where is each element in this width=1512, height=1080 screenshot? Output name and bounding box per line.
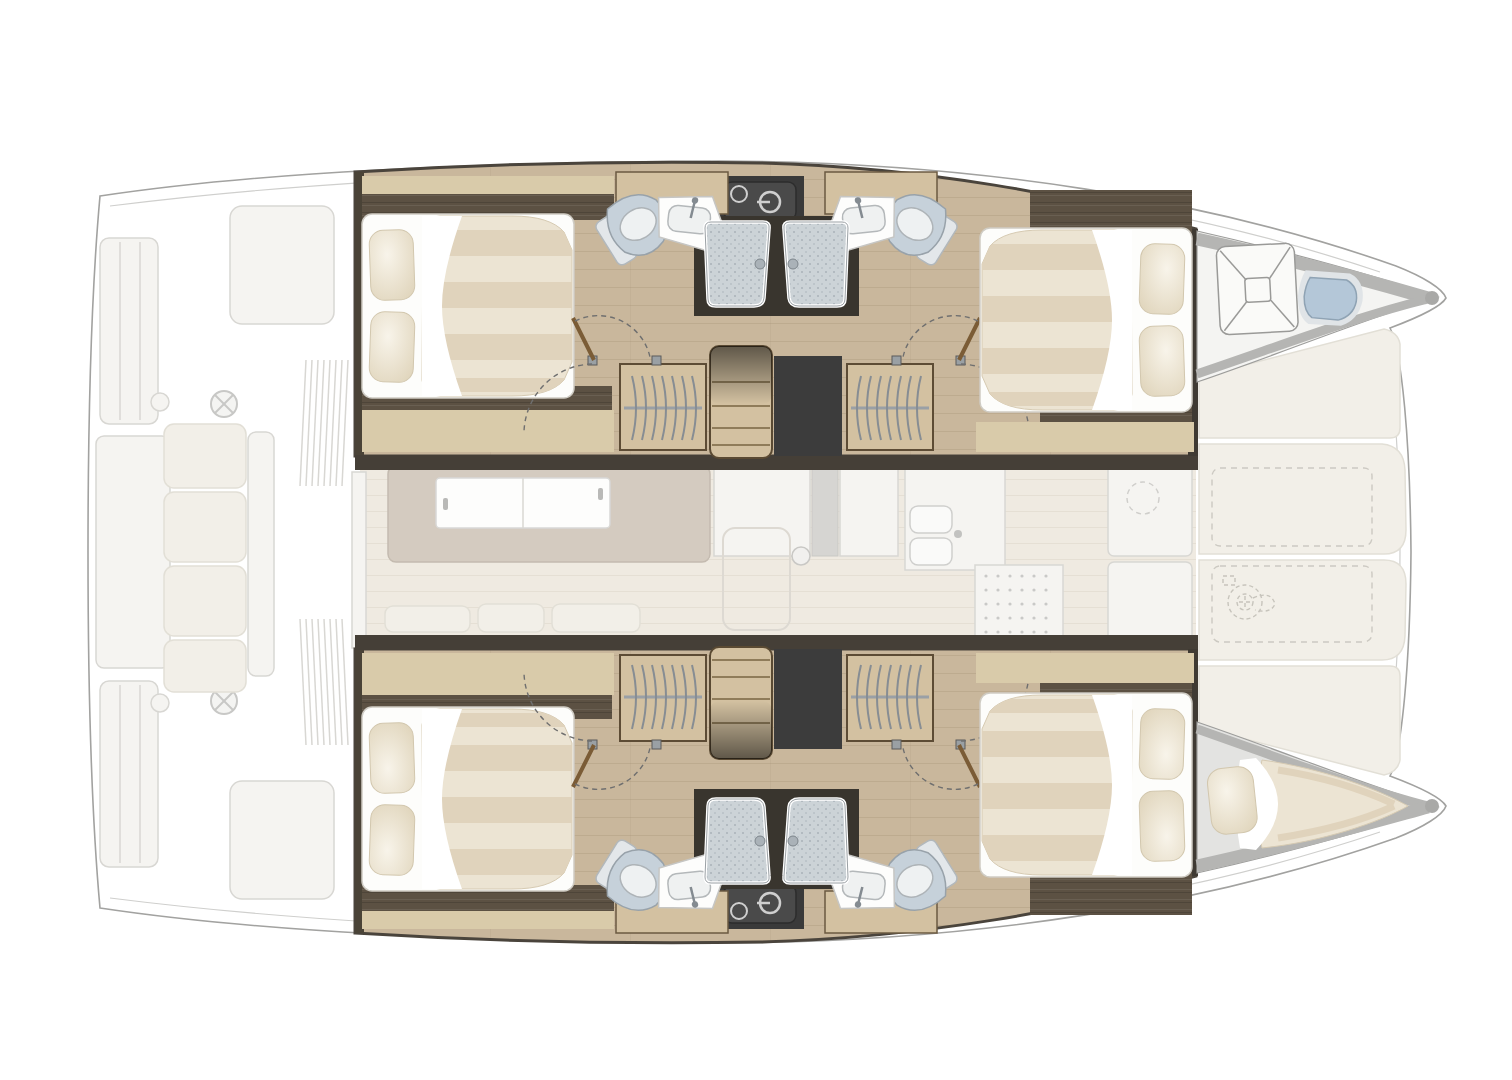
bench-cushion [164, 640, 246, 692]
door-handle [443, 498, 448, 510]
swim-platform [96, 436, 170, 668]
sofa-cushion [385, 606, 470, 632]
door-post [812, 462, 838, 556]
starboard-hull-interior [355, 635, 1198, 943]
stove [975, 565, 1063, 647]
catamaran-floor-plan [0, 0, 1512, 1080]
sink-bowl [910, 506, 952, 533]
refrigerator [1108, 460, 1192, 556]
bow-tip [1425, 799, 1439, 813]
sunpad-cushion [1199, 444, 1406, 554]
faucet [954, 530, 962, 538]
sofa-cushion [478, 604, 544, 632]
floor-plan-canvas [0, 0, 1512, 1080]
skipper-pillow [1206, 765, 1259, 835]
sofa-cushion [552, 604, 640, 632]
bench-cushion [164, 492, 246, 562]
port-hull-interior [355, 162, 1198, 470]
white-panel [840, 460, 898, 556]
sink-bowl [910, 538, 952, 565]
bench-cushion [164, 566, 246, 636]
forward-door-unit [714, 462, 810, 556]
bow-tip [1425, 291, 1439, 305]
aft-cockpit [96, 206, 348, 899]
bench-cushion [164, 424, 246, 488]
hatch-knob [792, 547, 810, 565]
foredeck-lounge [1199, 329, 1406, 775]
bench-backrest [248, 432, 274, 676]
saloon [352, 460, 1196, 648]
door-handle [598, 488, 603, 500]
forepeak-shower [1216, 243, 1298, 335]
cockpit-door [352, 472, 366, 648]
